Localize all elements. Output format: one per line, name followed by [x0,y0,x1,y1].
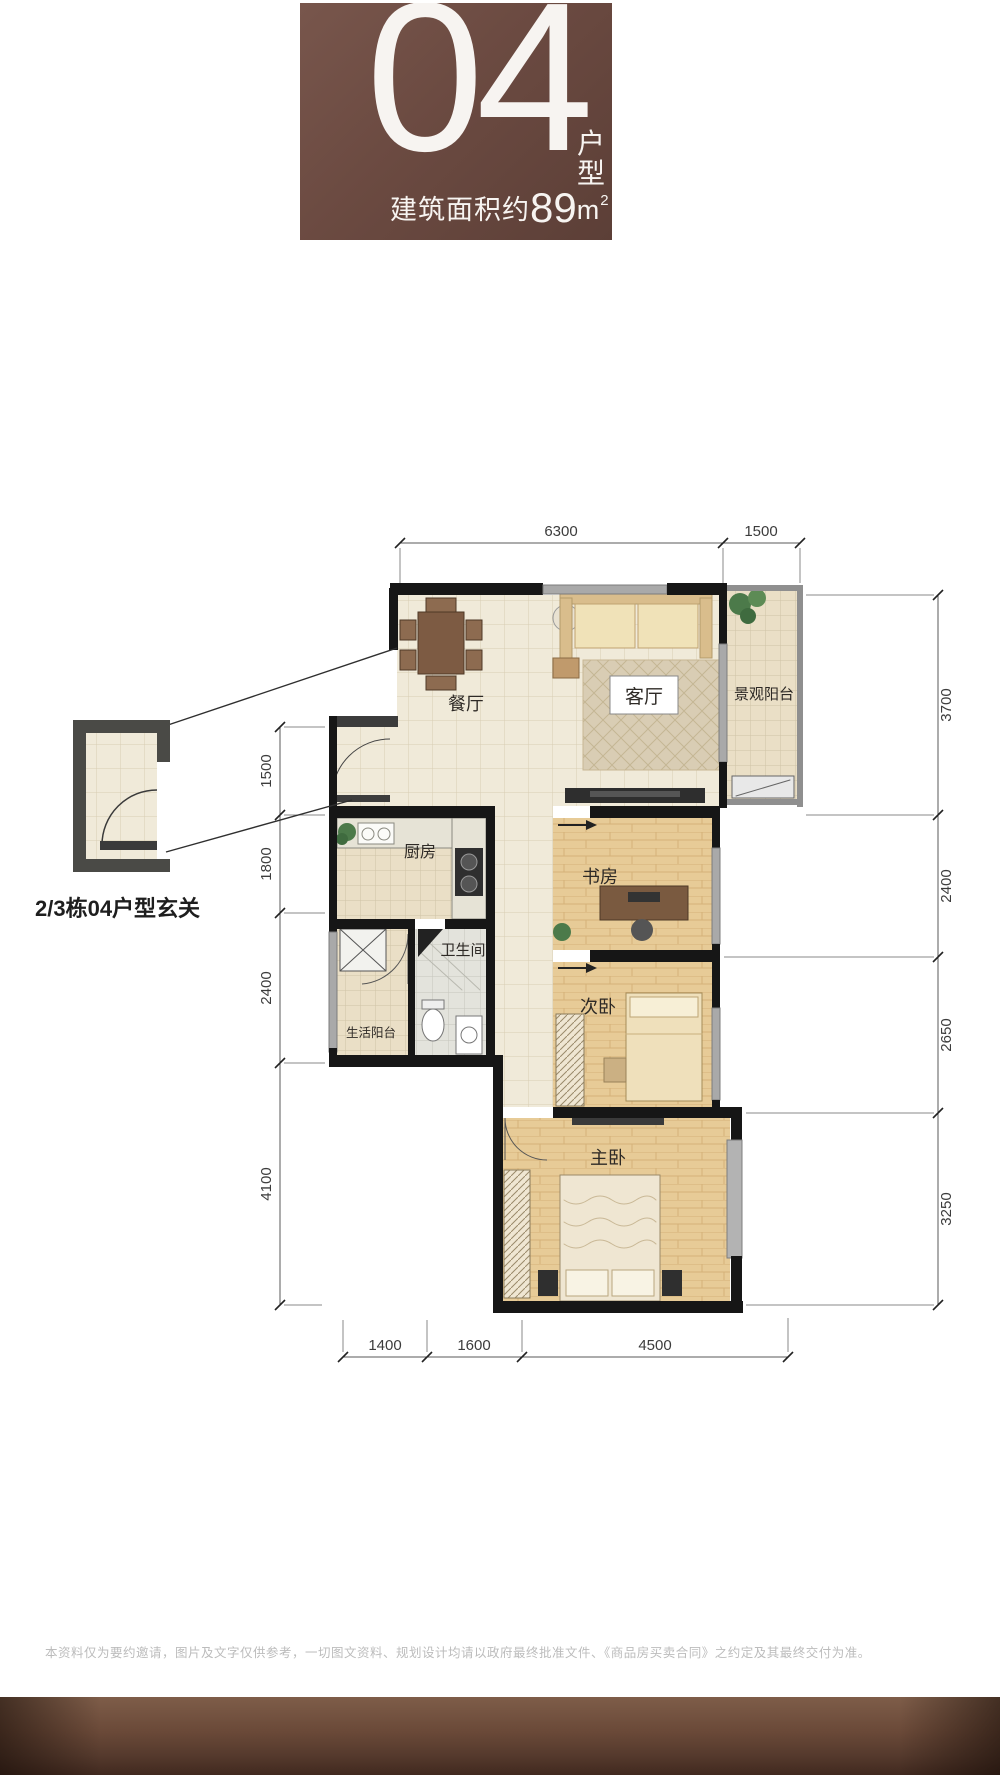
label-service-balcony: 生活阳台 [346,1025,396,1040]
area-value: 89 [530,184,577,231]
area-unit: m [577,195,601,225]
label-study: 书房 [582,867,618,887]
area-line: 建筑面积约89m2 [390,184,610,232]
dim-right-2: 2400 [938,869,955,902]
dim-right-1: 3700 [938,688,955,721]
bottom-wood-bar [0,1697,1000,1775]
entry-callout-label: 2/3栋04户型玄关 [35,896,200,921]
unit-number: 04 [366,3,586,183]
unit-kind-label: 户 型 [577,129,605,189]
area-superscript: 2 [600,192,609,209]
label-living: 客厅 [625,686,663,708]
dim-left-4: 4100 [258,1167,275,1200]
dim-bottom-2: 1600 [457,1337,490,1354]
dim-bottom-3: 4500 [638,1337,671,1354]
dim-left-3: 2400 [258,971,275,1004]
label-view-balcony: 景观阳台 [734,686,794,703]
unit-kind-char-top: 户 [577,129,605,159]
label-second-bedroom: 次卧 [580,997,616,1017]
area-prefix: 建筑面积约 [390,195,530,225]
label-dining: 餐厅 [448,694,484,714]
dim-left-2: 1800 [258,847,275,880]
dim-left-1: 1500 [258,754,275,787]
label-bathroom: 卫生间 [440,942,485,959]
dim-right-3: 2650 [938,1018,955,1051]
label-kitchen: 厨房 [404,843,436,861]
floorplan-page: { "header": { "unit_number": "04", "unit… [0,0,1000,1775]
dim-top-2: 1500 [744,523,777,540]
dim-bottom: 1400 1600 4500 [338,1318,793,1362]
disclaimer-text: 本资料仅为要约邀请，图片及文字仅供参考，一切图文资料、规划设计均请以政府最终批准… [45,1642,975,1661]
label-master-bedroom: 主卧 [590,1148,626,1168]
balcony-storage [732,776,794,798]
washing-machine [340,929,386,971]
dim-top-1: 6300 [544,523,577,540]
floor-plan-svg: 餐厅 客厅 景观阳台 厨房 卫生间 生活阳台 书房 次卧 主卧 6300 150… [0,430,1000,1430]
dim-top: 6300 1500 [395,523,805,583]
dim-bottom-1: 1400 [368,1337,401,1354]
unit-type-card: 04 户 型 建筑面积约89m2 [300,3,612,240]
dim-right-4: 3250 [938,1192,955,1225]
